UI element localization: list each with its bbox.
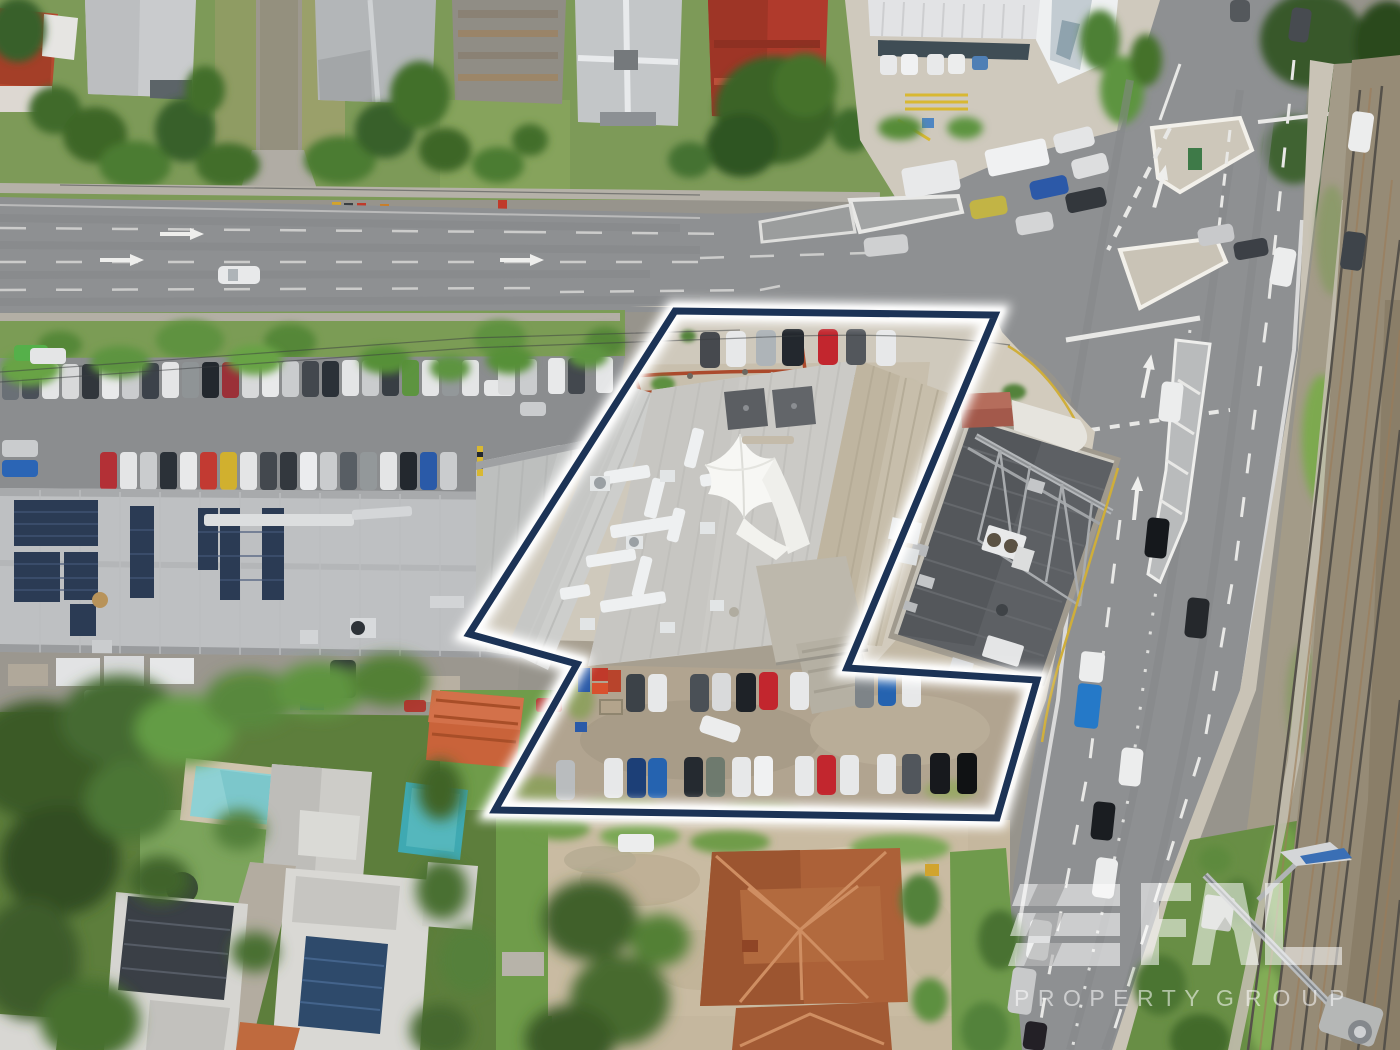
svg-text:PROPERTY: PROPERTY <box>1014 985 1208 1011</box>
svg-text:GROUP: GROUP <box>1216 985 1355 1011</box>
